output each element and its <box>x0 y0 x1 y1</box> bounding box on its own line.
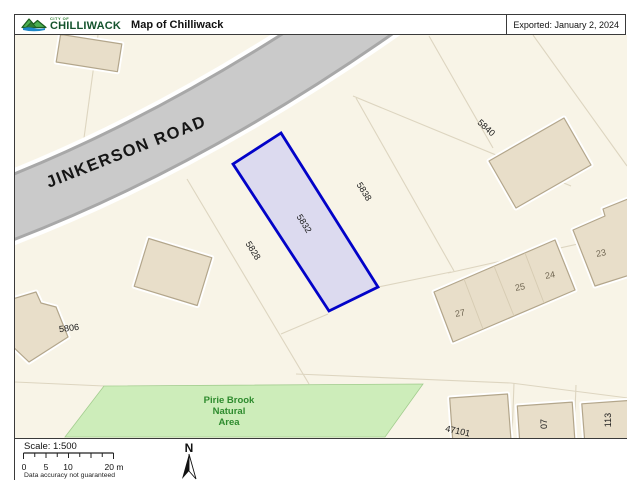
city-logo: CITY OF CHILLIWACK <box>21 17 121 33</box>
scale-tick-20: 20 m <box>99 462 129 472</box>
mountains-logo-icon <box>21 17 47 33</box>
parcel-label: 07 <box>539 419 549 429</box>
unit-label: 23 <box>595 247 607 259</box>
unit-label: 25 <box>514 281 526 293</box>
scale-bar <box>22 452 122 461</box>
unit-label: 27 <box>454 307 466 319</box>
natural-area-label-line1: Pirie Brook <box>204 395 255 406</box>
north-arrow-left-half <box>182 454 189 479</box>
exported-date: Exported: January 2, 2024 <box>506 15 625 34</box>
natural-area: Pirie Brook Natural Area <box>65 384 423 437</box>
logo-chilliwack: CHILLIWACK <box>50 21 121 32</box>
scale-text: Scale: 1:500 <box>24 441 77 452</box>
footer-bar: Scale: 1:500 0 5 10 20 m Data accuracy n… <box>15 438 627 481</box>
disclaimer-text: Data accuracy not guaranteed <box>24 472 115 479</box>
scale-tick-10: 10 <box>61 462 75 472</box>
logo-wordmark: CITY OF CHILLIWACK <box>50 17 121 32</box>
unit-label: 24 <box>544 269 556 281</box>
page-title: Map of Chilliwack <box>131 19 223 31</box>
natural-area-label-line3: Area <box>218 417 240 428</box>
scale-tick-0: 0 <box>19 462 29 472</box>
header-bar: CITY OF CHILLIWACK Map of Chilliwack Exp… <box>15 15 625 35</box>
map-canvas: JINKERSON ROAD Pirie Brook Natural Area <box>15 35 627 438</box>
north-label: N <box>185 441 194 455</box>
map-export-page: CITY OF CHILLIWACK Map of Chilliwack Exp… <box>14 14 626 480</box>
parcel-label: 113 <box>603 413 613 427</box>
north-arrow-right-half <box>189 454 196 479</box>
natural-area-label-line2: Natural <box>213 406 246 417</box>
scale-tick-5: 5 <box>40 462 52 472</box>
map-svg: JINKERSON ROAD Pirie Brook Natural Area <box>15 35 627 438</box>
north-arrow: N <box>169 441 209 481</box>
